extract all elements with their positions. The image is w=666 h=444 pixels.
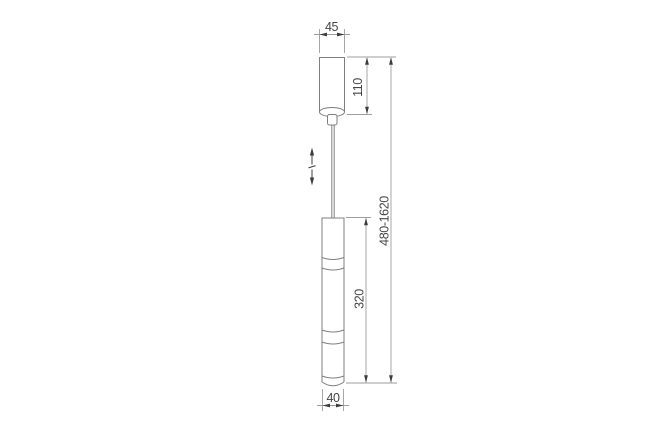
arrowhead-110-bottom xyxy=(365,107,369,115)
lamp-shade-tube xyxy=(322,218,344,386)
adjust-arrow-break-tick xyxy=(309,166,316,168)
arrowhead-110-top xyxy=(365,57,369,65)
dim-label-overall-height: 480-1620 xyxy=(378,196,392,246)
arrowhead-320-bottom xyxy=(364,375,368,383)
tube-ring-upper-top xyxy=(322,258,344,260)
arrowhead-480-top xyxy=(389,57,393,65)
arrowhead-480-bottom xyxy=(389,375,393,383)
ceiling-canopy xyxy=(320,58,345,126)
tube-bottom-inner-rim xyxy=(322,376,344,378)
dim-label-canopy-height: 110 xyxy=(351,78,365,97)
adjust-arrow-up-head xyxy=(310,148,314,156)
tube-bottom-cap xyxy=(322,382,344,386)
arrowhead-45-right xyxy=(337,33,345,37)
dim-label-shade-diameter: 40 xyxy=(326,391,340,405)
suspension-cord xyxy=(332,125,334,218)
dim-shade-diameter: 40 xyxy=(317,391,349,407)
dim-shade-length: 320 xyxy=(353,218,368,383)
pendant-lamp-dimension-drawing: 45 110 320 480-1620 40 xyxy=(0,0,666,444)
tube-ring-upper-bottom xyxy=(322,268,344,270)
cord-grip xyxy=(328,115,338,126)
adjust-arrow-down-head xyxy=(310,178,314,186)
tube-ring-lower-top xyxy=(322,330,344,332)
dim-label-canopy-width: 45 xyxy=(325,20,339,34)
dim-label-shade-length: 320 xyxy=(353,289,367,309)
drawing-canvas: 45 110 320 480-1620 40 xyxy=(0,0,666,444)
height-adjustable-arrow-icon xyxy=(309,148,316,186)
canopy-body xyxy=(320,58,345,113)
dim-overall-height: 480-1620 xyxy=(378,57,393,382)
dim-canopy-height: 110 xyxy=(351,57,369,114)
tube-ring-lower-bottom xyxy=(322,342,344,344)
tube-outline xyxy=(322,218,344,382)
arrowhead-320-top xyxy=(364,218,368,226)
